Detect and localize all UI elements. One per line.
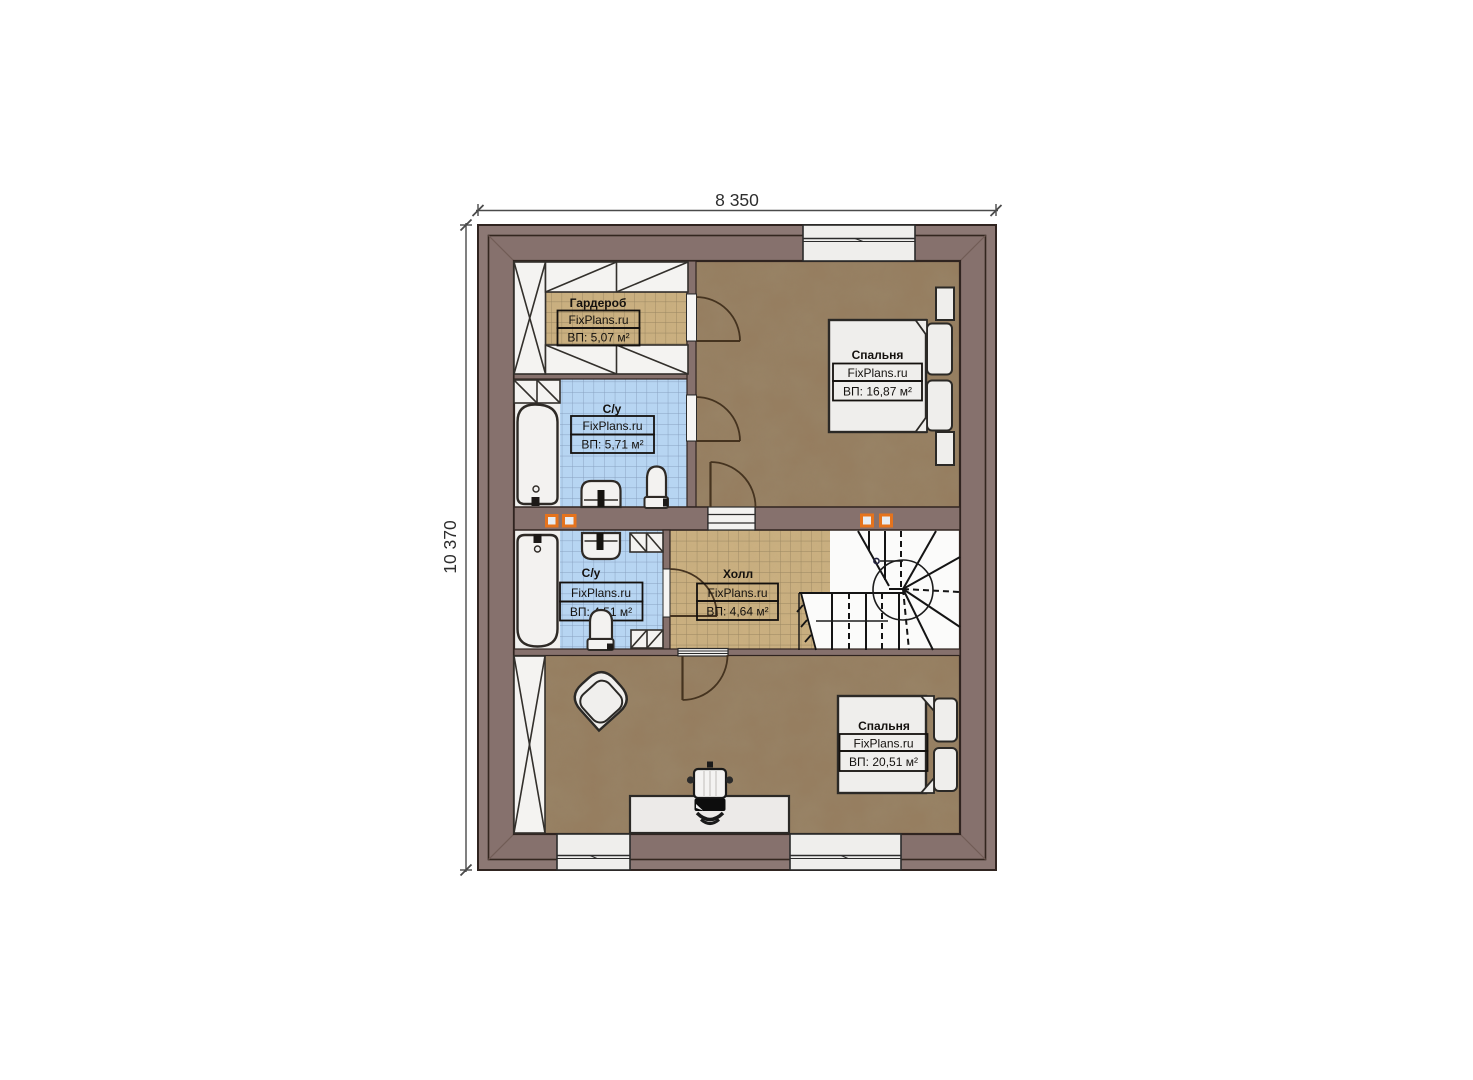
- svg-text:FixPlans.ru: FixPlans.ru: [568, 313, 628, 327]
- svg-text:10 370: 10 370: [440, 520, 460, 574]
- svg-text:С/у: С/у: [582, 566, 601, 580]
- svg-text:ВП: 5,07 м²: ВП: 5,07 м²: [567, 331, 629, 345]
- svg-text:ВП: 20,51 м²: ВП: 20,51 м²: [849, 755, 918, 769]
- svg-text:ВП: 4,64 м²: ВП: 4,64 м²: [706, 605, 768, 619]
- svg-text:Спальня: Спальня: [858, 719, 910, 733]
- svg-text:FixPlans.ru: FixPlans.ru: [707, 586, 767, 600]
- svg-text:С/у: С/у: [603, 402, 622, 416]
- svg-text:FixPlans.ru: FixPlans.ru: [853, 737, 913, 751]
- svg-text:FixPlans.ru: FixPlans.ru: [582, 419, 642, 433]
- svg-text:8 350: 8 350: [715, 190, 759, 210]
- svg-text:Спальня: Спальня: [852, 348, 904, 362]
- svg-text:ВП: 16,87 м²: ВП: 16,87 м²: [843, 385, 912, 399]
- svg-text:FixPlans.ru: FixPlans.ru: [847, 366, 907, 380]
- svg-text:Холл: Холл: [723, 567, 753, 581]
- svg-text:FixPlans.ru: FixPlans.ru: [571, 586, 631, 600]
- svg-text:Гардероб: Гардероб: [570, 296, 627, 310]
- svg-text:ВП: 5,71 м²: ВП: 5,71 м²: [581, 438, 643, 452]
